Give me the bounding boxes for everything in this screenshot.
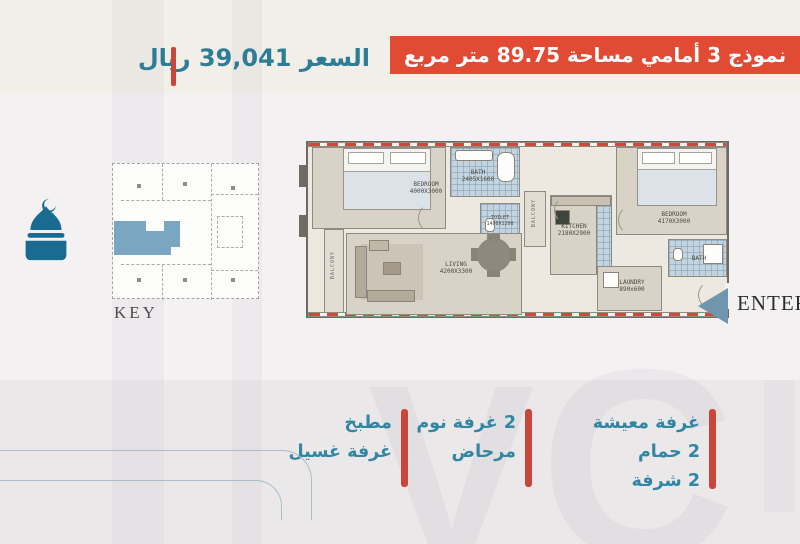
legend-column-right: غرفة معيشة 2 حمام 2 شرفة	[552, 409, 716, 496]
key-unit-notch	[146, 214, 164, 231]
legend-item: 2 حمام	[552, 438, 700, 467]
key-door-dot	[137, 278, 141, 282]
key-wall-line	[162, 164, 163, 200]
key-wall-line	[121, 200, 211, 201]
room-dims: 4000X3000	[410, 188, 443, 195]
room-label: LAUNDRY	[619, 279, 644, 286]
enter-arrow-icon	[698, 288, 728, 324]
key-wall-line	[211, 270, 258, 271]
legend-accent-bar	[709, 409, 716, 489]
key-door-dot	[231, 278, 235, 282]
pillow	[679, 152, 712, 164]
room-label: BEDROOM	[413, 181, 438, 188]
legend-item: مرحاض	[404, 438, 516, 467]
enter-label: ENTER	[737, 291, 800, 316]
pillow	[348, 152, 384, 164]
door-arc	[418, 203, 448, 233]
legend-item: مطبخ	[282, 409, 392, 438]
balcony-jut	[299, 165, 307, 187]
mosque-icon	[17, 197, 75, 265]
chair	[487, 234, 500, 241]
room-label: BATH	[692, 255, 706, 262]
room-label: BALCONY	[330, 251, 336, 279]
room-dims: 4170X3000	[658, 218, 691, 225]
key-wall-line	[211, 194, 258, 195]
room-label: BEDROOM	[661, 211, 686, 218]
key-label: KEY	[114, 303, 158, 323]
room-dims: 2180X2900	[558, 230, 591, 237]
title-banner: نموذج 3 أمامي مساحة 89.75 متر مربع	[390, 36, 800, 74]
armchair	[369, 240, 389, 251]
legend-accent-bar	[401, 409, 408, 487]
chair	[487, 270, 500, 277]
blanket	[638, 169, 716, 205]
pillow	[642, 152, 675, 164]
door-arc	[554, 197, 580, 223]
key-map	[112, 163, 259, 299]
sofa	[355, 246, 367, 298]
door-arc	[618, 205, 648, 235]
legend-item: غرفة معيشة	[552, 409, 700, 438]
sofa	[367, 290, 415, 302]
key-wall-line	[211, 164, 212, 300]
watermark-bar	[764, 380, 794, 512]
room-dims: 890x600	[619, 286, 644, 293]
key-unit-outline	[217, 216, 243, 248]
legend-item: 2 شرفة	[552, 467, 700, 496]
room-label: KITCHEN	[561, 223, 586, 230]
key-door-dot	[183, 278, 187, 282]
key-wall-line	[162, 264, 163, 300]
legend-accent-bar	[525, 409, 532, 487]
coffee-table	[383, 262, 401, 275]
room-dims: 4200X3300	[440, 268, 473, 275]
flyer-page: V C نموذج 3 أمامي مساحة 89.75 متر مربع ا…	[0, 0, 800, 544]
bed	[343, 148, 431, 210]
room-dims: 1400X1200	[486, 221, 513, 227]
room-label: LIVING	[445, 261, 467, 268]
key-unit-step	[171, 247, 180, 256]
legend-column-middle: 2 غرفة نوم مرحاض	[404, 409, 532, 487]
bed	[637, 148, 717, 206]
legend-item: 2 غرفة نوم	[404, 409, 516, 438]
chair	[471, 248, 478, 261]
price-accent-bar	[171, 47, 176, 86]
floor-plan: BEDROOM 4000X3000 BATH 2405X1600 TOILET …	[306, 141, 729, 318]
chair	[509, 248, 516, 261]
key-door-dot	[137, 184, 141, 188]
pillow	[390, 152, 426, 164]
sink-counter	[455, 150, 493, 161]
key-door-dot	[183, 182, 187, 186]
kitchen-tiles	[596, 206, 611, 274]
room-label: BATH	[471, 169, 485, 176]
toilet-fixture	[673, 248, 683, 261]
room-dims: 2405X1600	[462, 176, 495, 183]
room-label: BALCONY	[531, 199, 537, 227]
balcony-jut	[299, 215, 307, 237]
key-wall-line	[121, 264, 211, 265]
decorative-curve	[0, 480, 282, 520]
key-door-dot	[231, 186, 235, 190]
